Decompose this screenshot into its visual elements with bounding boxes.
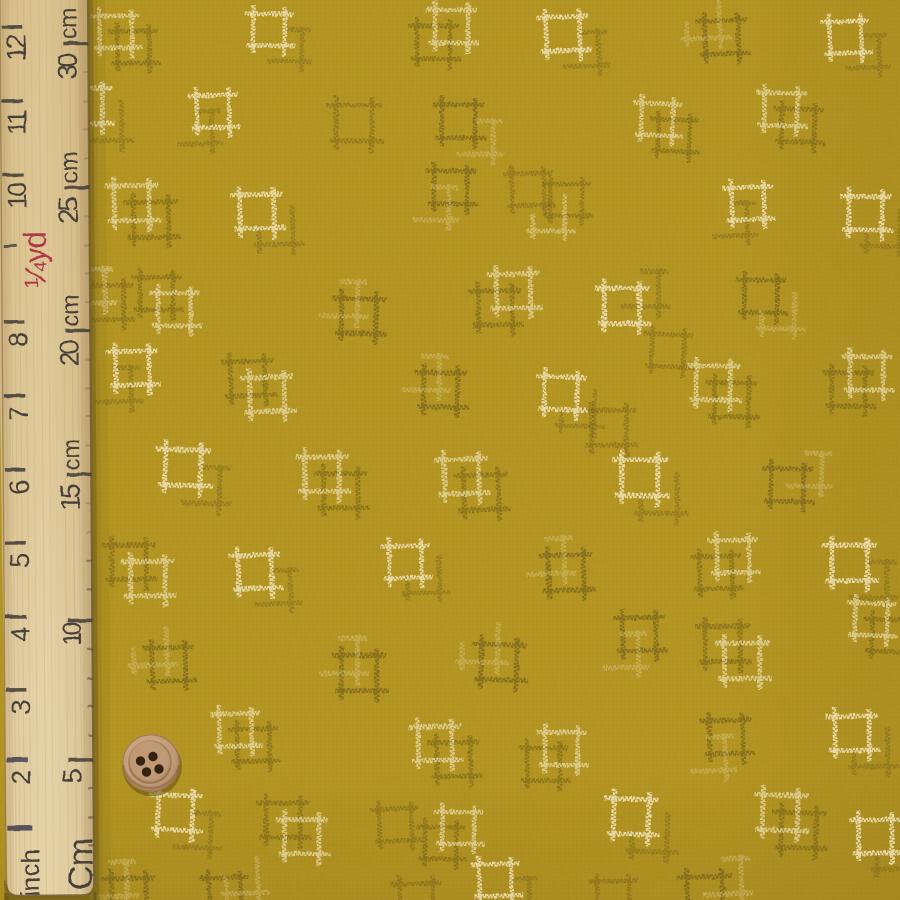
svg-text:30: 30 <box>52 53 82 79</box>
svg-text:15: 15 <box>55 484 85 510</box>
svg-text:cm: cm <box>58 438 85 470</box>
svg-text:10: 10 <box>2 183 32 209</box>
svg-text:¼yd: ¼yd <box>18 232 53 288</box>
svg-text:12: 12 <box>1 35 31 61</box>
svg-text:25: 25 <box>53 197 83 223</box>
svg-text:cm: cm <box>55 7 82 39</box>
svg-text:20: 20 <box>54 340 84 366</box>
svg-text:cm: cm <box>56 151 83 183</box>
svg-text:Cm: Cm <box>62 837 100 890</box>
svg-text:10: 10 <box>58 623 86 646</box>
svg-text:cm: cm <box>57 294 84 326</box>
svg-text:11: 11 <box>2 111 32 135</box>
svg-text:inch: inch <box>15 849 45 897</box>
